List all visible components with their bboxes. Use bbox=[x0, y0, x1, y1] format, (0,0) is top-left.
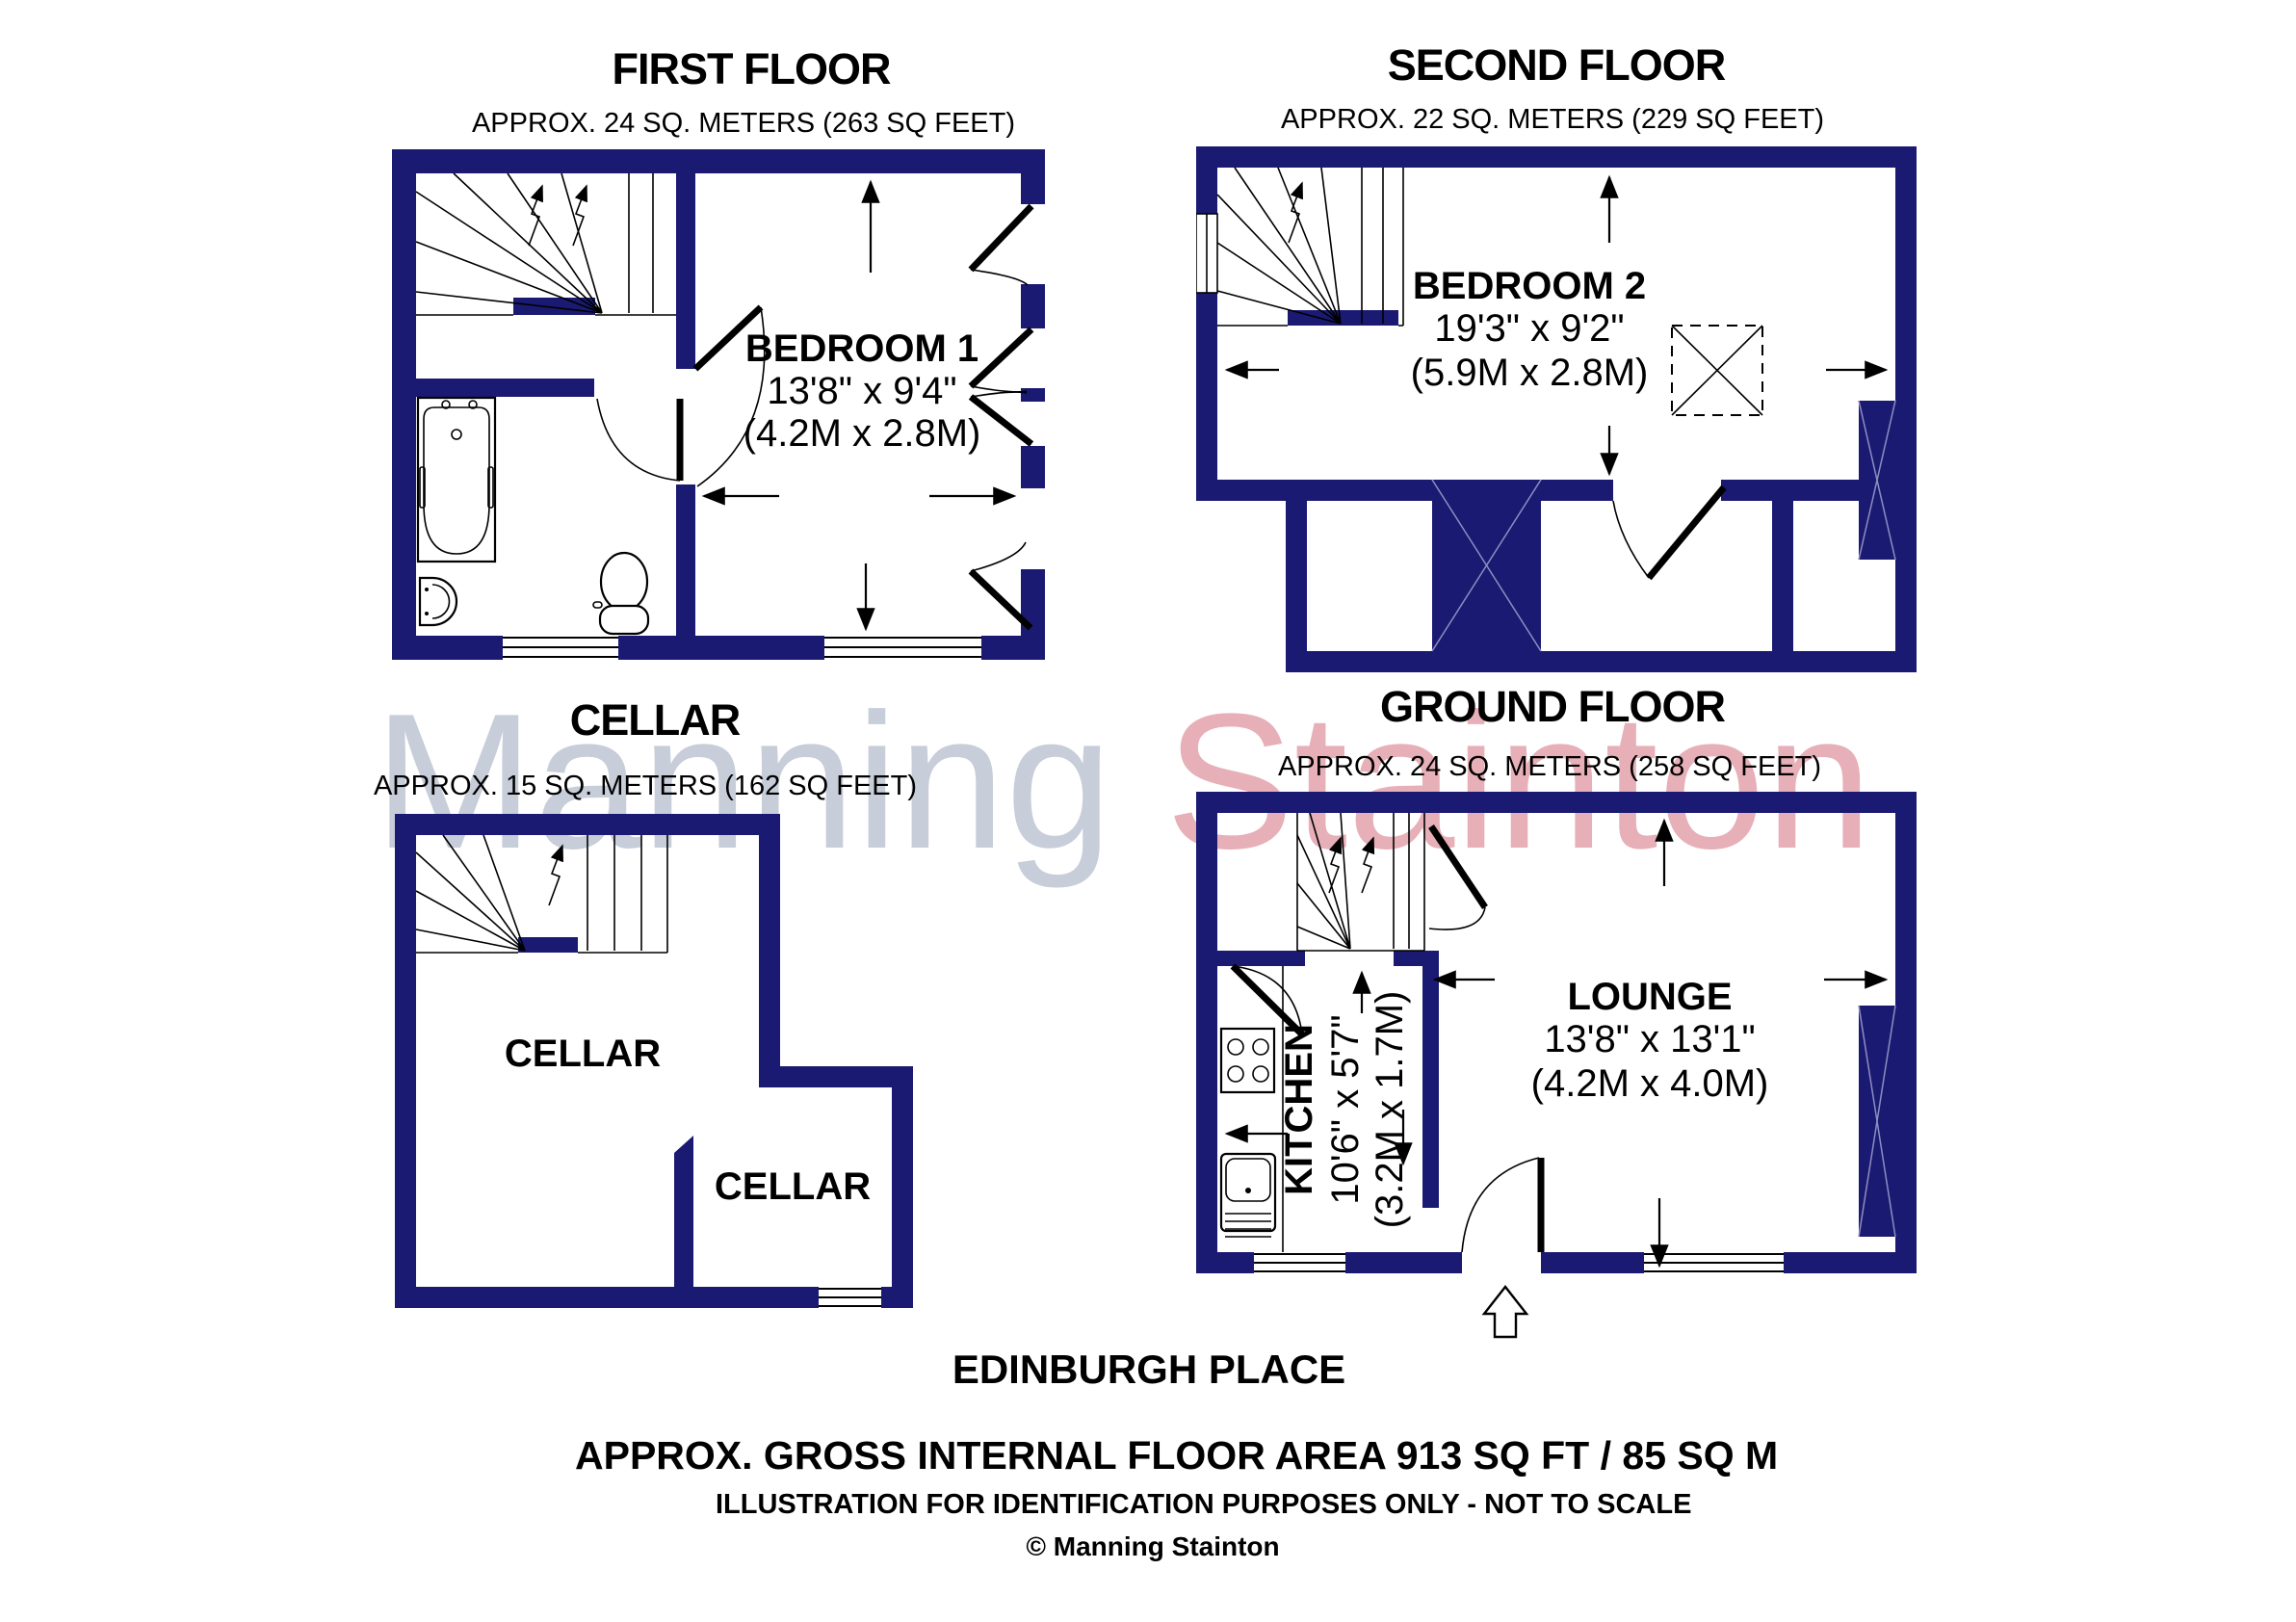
toilet-icon bbox=[593, 553, 648, 634]
stairs-icon bbox=[1297, 813, 1424, 951]
entrance-arrow-icon bbox=[1484, 1287, 1526, 1337]
room-name: KITCHEN bbox=[1278, 1024, 1320, 1195]
room-dim-metric: (4.2M x 4.0M) bbox=[1531, 1062, 1769, 1105]
hall-door bbox=[1429, 826, 1485, 929]
stairs-icon bbox=[416, 173, 676, 315]
room-name: LOUNGE bbox=[1567, 976, 1732, 1018]
bedroom1-label: BEDROOM 1 13'8" x 9'4" (4.2M x 2.8M) bbox=[744, 327, 981, 455]
room-dim-imperial: 13'8" x 13'1" bbox=[1544, 1018, 1755, 1060]
bedroom2-door bbox=[1613, 487, 1724, 578]
room-dim-imperial: 10'6" x 5'7" bbox=[1324, 1014, 1367, 1204]
cellar-window bbox=[819, 1287, 881, 1308]
address-title: EDINBURGH PLACE bbox=[860, 1347, 1438, 1393]
first-floor-subtitle: APPROX. 24 SQ. METERS (263 SQ FEET) bbox=[406, 108, 1081, 140]
chimney-breast bbox=[1859, 401, 1895, 560]
room-name: BEDROOM 1 bbox=[745, 327, 978, 370]
floorplan-page: ManningStainton FIRST FLOOR APPROX. 24 S… bbox=[0, 0, 2296, 1622]
kitchen-sink-icon bbox=[1221, 1154, 1275, 1237]
gross-area-summary: APPROX. GROSS INTERNAL FLOOR AREA 913 SQ… bbox=[575, 1433, 1731, 1478]
stairs-icon bbox=[416, 835, 667, 953]
entrance-door bbox=[1462, 1158, 1541, 1252]
sf-walls bbox=[1196, 146, 1917, 672]
ff-window-bottom-left bbox=[503, 636, 618, 660]
disclaimer-text: ILLUSTRATION FOR IDENTIFICATION PURPOSES… bbox=[716, 1489, 1582, 1521]
ground-floor-title: GROUND FLOOR bbox=[1264, 682, 1841, 732]
bedroom2-label: BEDROOM 2 19'3" x 9'2" (5.9M x 2.8M) bbox=[1411, 265, 1649, 394]
second-floor-subtitle: APPROX. 22 SQ. METERS (229 SQ FEET) bbox=[1215, 104, 1890, 136]
kitchen-label: KITCHEN 10'6" x 5'7" (3.2M x 1.7M) bbox=[1278, 991, 1411, 1229]
first-floor-title: FIRST FLOOR bbox=[462, 44, 1040, 94]
stairs-icon bbox=[1217, 168, 1403, 326]
room-dim-metric: (5.9M x 2.8M) bbox=[1411, 352, 1649, 394]
ground-floor-plan: LOUNGE 13'8" x 13'1" (4.2M x 4.0M) KITCH… bbox=[1196, 792, 1917, 1341]
cellar-title: CELLAR bbox=[366, 695, 944, 746]
rooflight-icon bbox=[1672, 326, 1762, 415]
copyright-text: © Manning Stainton bbox=[864, 1531, 1442, 1562]
cellar-plan: CELLAR CELLAR bbox=[395, 814, 913, 1308]
first-floor-plan: BEDROOM 1 13'8" x 9'4" (4.2M x 2.8M) bbox=[392, 149, 1045, 660]
sink-icon bbox=[420, 578, 457, 625]
bathroom-door bbox=[597, 399, 680, 481]
ground-floor-subtitle: APPROX. 24 SQ. METERS (258 SQ FEET) bbox=[1213, 751, 1887, 783]
room-name: CELLAR bbox=[715, 1165, 871, 1208]
room-name: CELLAR bbox=[505, 1033, 661, 1075]
chimney-void-block bbox=[1432, 480, 1541, 651]
bath-icon bbox=[418, 398, 495, 562]
kitchen-window bbox=[1254, 1252, 1345, 1273]
chimney-breast bbox=[1859, 1006, 1895, 1237]
side-window bbox=[1196, 214, 1217, 293]
room-name: BEDROOM 2 bbox=[1413, 265, 1646, 307]
room-dim-imperial: 19'3" x 9'2" bbox=[1434, 307, 1624, 350]
second-floor-plan: BEDROOM 2 19'3" x 9'2" (5.9M x 2.8M) bbox=[1196, 146, 1917, 672]
room-dim-metric: (3.2M x 1.7M) bbox=[1369, 991, 1411, 1229]
cellar-subtitle: APPROX. 15 SQ. METERS (162 SQ FEET) bbox=[308, 771, 982, 802]
lounge-label: LOUNGE 13'8" x 13'1" (4.2M x 4.0M) bbox=[1531, 976, 1769, 1105]
hob-icon bbox=[1221, 1029, 1274, 1092]
room-dim-metric: (4.2M x 2.8M) bbox=[744, 412, 981, 455]
lounge-window bbox=[1644, 1252, 1784, 1273]
second-floor-title: SECOND FLOOR bbox=[1267, 40, 1845, 91]
ff-window-bottom-right bbox=[824, 636, 981, 660]
room-dim-imperial: 13'8" x 9'4" bbox=[767, 370, 956, 412]
